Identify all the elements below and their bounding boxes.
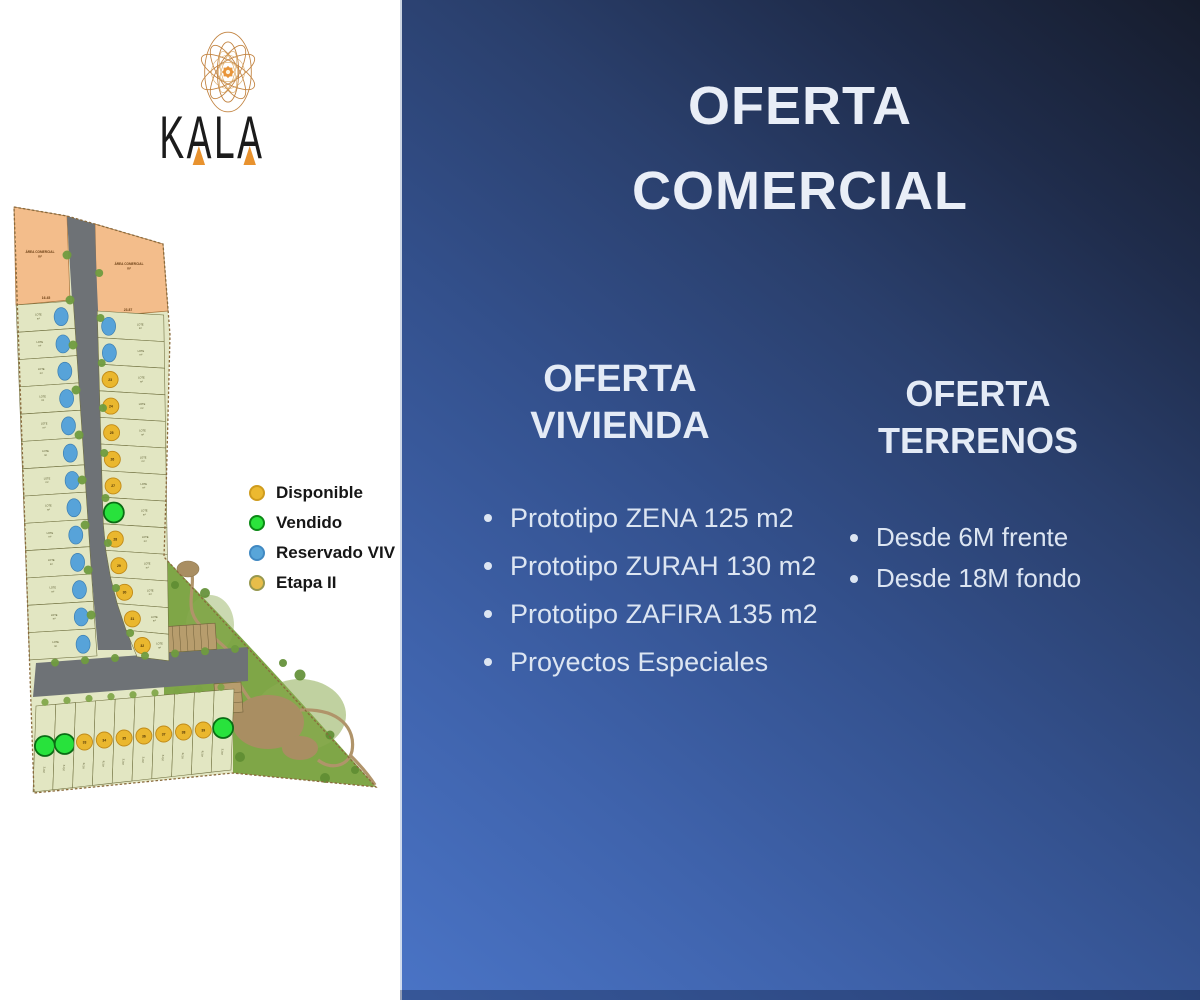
legend-label: Vendido — [276, 513, 342, 533]
vivienda-bullet-2: Prototipo ZURAH 130 m2 — [510, 552, 816, 580]
legend-label: Reservado VIV — [276, 543, 395, 563]
svg-text:m²: m² — [41, 399, 44, 402]
svg-text:LOTE: LOTE — [141, 510, 148, 513]
left-panel: KALA — [0, 0, 400, 1000]
tree-icon — [173, 687, 180, 694]
svg-text:m²: m² — [53, 618, 56, 621]
svg-text:LOTE: LOTE — [138, 377, 145, 380]
list-item: Desde 18M fondo — [850, 565, 1081, 592]
svg-text:m²: m² — [47, 508, 50, 511]
svg-text:m²: m² — [144, 540, 147, 543]
tree-icon — [51, 659, 59, 667]
legend-item: Disponible — [249, 483, 395, 503]
svg-text:30: 30 — [123, 591, 127, 595]
svg-text:LOTE: LOTE — [138, 350, 145, 353]
svg-text:ÁREA COMERCIAL: ÁREA COMERCIAL — [114, 261, 143, 266]
list-item: Prototipo ZENA 125 m2 — [484, 504, 818, 532]
brand-letter: L — [213, 108, 236, 168]
tree-icon — [171, 650, 179, 658]
tree-icon — [100, 449, 108, 457]
map-legend: DisponibleVendidoReservado VIVEtapa II — [249, 483, 395, 603]
list-item: Desde 6M frente — [850, 524, 1081, 551]
tree-icon — [231, 645, 239, 653]
svg-text:m²: m² — [51, 590, 54, 593]
vivienda-bullet-4: Proyectos Especiales — [510, 648, 768, 676]
tree-icon — [111, 654, 119, 662]
svg-text:29: 29 — [117, 564, 121, 568]
tree-icon — [63, 697, 70, 704]
legend-item: Reservado VIV — [249, 543, 395, 563]
tree-icon — [129, 691, 136, 698]
svg-text:m²: m² — [141, 407, 144, 410]
tree-icon — [98, 359, 106, 367]
svg-text:LOTE: LOTE — [37, 341, 44, 344]
vivienda-bullet-1: Prototipo ZENA 125 m2 — [510, 504, 794, 532]
svg-text:LOTE: LOTE — [137, 323, 144, 326]
terrenos-heading: OFERTA TERRENOS — [838, 370, 1118, 464]
tree-icon — [201, 647, 209, 655]
svg-text:32: 32 — [140, 644, 144, 648]
terrenos-heading-line2: TERRENOS — [838, 417, 1118, 464]
svg-text:39: 39 — [201, 728, 205, 732]
svg-text:LOTE: LOTE — [49, 586, 56, 589]
svg-text:35: 35 — [122, 736, 126, 740]
tree-icon — [75, 431, 84, 440]
svg-text:16.45: 16.45 — [42, 296, 51, 300]
tree-icon — [72, 386, 81, 395]
bottom-shade-strip — [400, 990, 1200, 1000]
tree-icon — [66, 296, 75, 305]
offer-panel: OFERTA COMERCIAL OFERTA VIVIENDA OFERTA … — [400, 0, 1200, 1000]
svg-text:28: 28 — [113, 537, 117, 541]
svg-text:m²: m² — [141, 434, 144, 437]
terrenos-bullet-2: Desde 18M fondo — [876, 565, 1081, 592]
svg-text:m²: m² — [142, 487, 145, 490]
tree-icon — [78, 476, 87, 485]
list-item: Prototipo ZURAH 130 m2 — [484, 552, 818, 580]
tree-icon — [99, 404, 107, 412]
legend-item: Vendido — [249, 513, 395, 533]
bullet-icon — [484, 562, 492, 570]
svg-text:LOTE: LOTE — [39, 395, 46, 398]
svg-text:m²: m² — [127, 267, 131, 271]
list-item: Prototipo ZAFIRA 135 m2 — [484, 600, 818, 628]
bullet-icon — [484, 514, 492, 522]
terrenos-bullet-list: Desde 6M frente Desde 18M fondo — [850, 524, 1081, 606]
vivienda-bullet-list: Prototipo ZENA 125 m2 Prototipo ZURAH 13… — [484, 504, 818, 696]
list-item: Proyectos Especiales — [484, 648, 818, 676]
tree-icon — [112, 584, 120, 592]
svg-text:LOTE: LOTE — [35, 313, 42, 316]
legend-label: Disponible — [276, 483, 363, 503]
commercial-area-left — [14, 207, 70, 305]
tree-icon — [87, 611, 96, 620]
svg-text:LOTE: LOTE — [51, 614, 58, 617]
svg-text:m²: m² — [50, 563, 53, 566]
bullet-icon — [850, 575, 858, 583]
tree-icon — [217, 684, 224, 691]
svg-text:m²: m² — [142, 460, 145, 463]
svg-text:ÁREA COMERCIAL: ÁREA COMERCIAL — [25, 249, 54, 254]
svg-text:m²: m² — [139, 354, 142, 357]
svg-text:m²: m² — [146, 567, 149, 570]
svg-text:m²: m² — [149, 593, 152, 596]
legend-label: Etapa II — [276, 573, 336, 593]
svg-text:m²: m² — [153, 620, 156, 623]
brand-letter: A — [236, 108, 263, 168]
svg-text:33: 33 — [83, 740, 87, 744]
terrenos-heading-line1: OFERTA — [838, 370, 1118, 417]
legend-swatch-icon — [249, 485, 265, 501]
terrenos-bullet-1: Desde 6M frente — [876, 524, 1068, 551]
vivienda-heading-line1: OFERTA — [450, 356, 790, 403]
svg-text:LOTE: LOTE — [140, 483, 147, 486]
svg-text:37: 37 — [162, 732, 166, 736]
vivienda-heading-line2: VIVIENDA — [450, 403, 790, 450]
svg-text:m²: m² — [38, 255, 42, 259]
svg-text:m²: m² — [43, 426, 46, 429]
tree-icon — [95, 269, 103, 277]
svg-text:LOTE: LOTE — [156, 643, 163, 646]
tree-icon — [96, 314, 104, 322]
svg-text:36: 36 — [142, 734, 146, 738]
svg-text:m²: m² — [48, 536, 51, 539]
svg-text:LOTE: LOTE — [139, 403, 146, 406]
svg-text:LOTE: LOTE — [48, 559, 55, 562]
title-line2: COMERCIAL — [400, 149, 1200, 234]
vivienda-bullet-3: Prototipo ZAFIRA 135 m2 — [510, 600, 818, 628]
legend-swatch-icon — [249, 575, 265, 591]
svg-text:m²: m² — [40, 372, 43, 375]
tree-icon — [84, 566, 93, 575]
svg-text:LOTE: LOTE — [142, 536, 149, 539]
bullet-icon — [484, 610, 492, 618]
svg-text:LOTE: LOTE — [45, 505, 52, 508]
tree-icon — [85, 695, 92, 702]
svg-text:23: 23 — [108, 378, 112, 382]
svg-text:m²: m² — [143, 513, 146, 516]
vivienda-heading: OFERTA VIVIENDA — [450, 356, 790, 450]
brand-letter: K — [158, 108, 185, 168]
svg-text:31: 31 — [130, 617, 134, 621]
tree-icon — [104, 539, 112, 547]
bullet-icon — [484, 658, 492, 666]
commercial-area-right — [95, 224, 168, 317]
brand-letter: A — [185, 108, 212, 168]
svg-text:25: 25 — [110, 431, 114, 435]
svg-text:23.87: 23.87 — [124, 308, 133, 312]
svg-text:26: 26 — [110, 458, 114, 462]
svg-text:LOTE: LOTE — [44, 477, 51, 480]
tree-icon — [141, 652, 149, 660]
svg-text:LOTE: LOTE — [52, 641, 59, 644]
tree-icon — [107, 693, 114, 700]
legend-swatch-icon — [249, 515, 265, 531]
tree-icon — [69, 341, 78, 350]
brand-name: KALA — [87, 108, 335, 168]
svg-text:38: 38 — [182, 730, 186, 734]
svg-text:LOTE: LOTE — [144, 563, 151, 566]
svg-text:m²: m² — [44, 454, 47, 457]
legend-swatch-icon — [249, 545, 265, 561]
svg-text:m²: m² — [37, 317, 40, 320]
tree-icon — [81, 656, 89, 664]
svg-text:LOTE: LOTE — [151, 616, 158, 619]
svg-text:m²: m² — [158, 646, 161, 649]
svg-text:24: 24 — [109, 404, 113, 408]
svg-text:27: 27 — [111, 484, 115, 488]
svg-text:LOTE: LOTE — [47, 532, 54, 535]
svg-text:m²: m² — [140, 380, 143, 383]
legend-item: Etapa II — [249, 573, 395, 593]
svg-text:LOTE: LOTE — [38, 368, 45, 371]
svg-text:34: 34 — [102, 738, 106, 742]
svg-text:LOTE: LOTE — [42, 450, 49, 453]
bullet-icon — [850, 534, 858, 542]
svg-text:m²: m² — [139, 327, 142, 330]
svg-text:m²: m² — [38, 345, 41, 348]
slide: KALA — [0, 0, 1200, 1000]
tree-icon — [151, 689, 158, 696]
lot-row-bottom: LOTELOTE33LOTE34LOTE35LOTE36LOTE37LOTE38… — [33, 689, 234, 792]
svg-text:m²: m² — [54, 645, 57, 648]
svg-text:LOTE: LOTE — [41, 423, 48, 426]
svg-text:LOTE: LOTE — [147, 589, 154, 592]
tree-icon — [81, 521, 90, 530]
title-line1: OFERTA — [400, 64, 1200, 149]
svg-text:LOTE: LOTE — [140, 456, 147, 459]
svg-text:LOTE: LOTE — [139, 430, 146, 433]
tree-icon — [63, 251, 72, 260]
tree-icon — [41, 699, 48, 706]
page-title: OFERTA COMERCIAL — [400, 64, 1200, 234]
tree-icon — [101, 494, 109, 502]
tree-icon — [195, 686, 202, 693]
tree-icon — [126, 629, 134, 637]
svg-text:m²: m² — [46, 481, 49, 484]
mandala-center — [222, 66, 234, 78]
